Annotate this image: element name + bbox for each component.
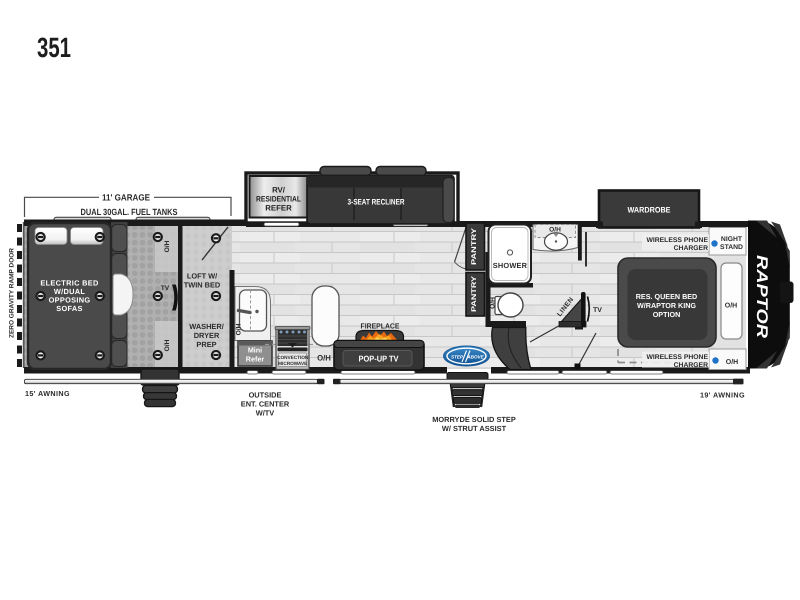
- svg-text:RES. QUEEN BED: RES. QUEEN BED: [636, 292, 698, 301]
- svg-text:TV: TV: [593, 307, 602, 314]
- svg-text:PREP: PREP: [196, 340, 216, 349]
- svg-text:REFER: REFER: [265, 204, 292, 213]
- svg-text:O/H: O/H: [726, 358, 738, 366]
- svg-text:3-SEAT RECLINER: 3-SEAT RECLINER: [348, 198, 405, 207]
- svg-text:O/H: O/H: [490, 297, 497, 309]
- svg-text:OUTSIDE: OUTSIDE: [249, 391, 282, 400]
- svg-text:19' AWNING: 19' AWNING: [700, 390, 745, 399]
- svg-text:15' AWNING: 15' AWNING: [25, 389, 70, 398]
- svg-text:SOFAS: SOFAS: [56, 304, 83, 313]
- svg-text:351: 351: [37, 32, 71, 63]
- svg-text:O/H: O/H: [164, 240, 171, 252]
- svg-text:W/ STRUT ASSIST: W/ STRUT ASSIST: [442, 424, 507, 433]
- svg-text:CHARGER: CHARGER: [674, 245, 708, 252]
- svg-text:FIREPLACE: FIREPLACE: [361, 321, 400, 330]
- svg-text:O/H: O/H: [317, 354, 331, 363]
- svg-text:CONVECTION: CONVECTION: [277, 355, 309, 360]
- svg-text:CHARGER: CHARGER: [674, 362, 708, 369]
- svg-text:Mini: Mini: [248, 346, 262, 355]
- svg-text:W/RAPTOR KING: W/RAPTOR KING: [637, 301, 696, 310]
- svg-text:SHOWER: SHOWER: [493, 261, 528, 270]
- svg-text:11' GARAGE: 11' GARAGE: [102, 193, 150, 203]
- svg-text:DRYER: DRYER: [194, 331, 220, 340]
- svg-text:POP-UP TV: POP-UP TV: [359, 354, 399, 364]
- svg-text:PANTRY: PANTRY: [471, 227, 478, 265]
- svg-text:Refer: Refer: [246, 355, 265, 364]
- svg-text:RV/: RV/: [272, 186, 286, 195]
- svg-text:LOFT W/: LOFT W/: [187, 272, 217, 281]
- svg-text:STEP: STEP: [451, 354, 464, 359]
- svg-text:WARDROBE: WARDROBE: [628, 206, 672, 215]
- svg-text:O/H: O/H: [725, 302, 737, 310]
- svg-text:PANTRY: PANTRY: [471, 275, 478, 312]
- svg-text:RAPTOR: RAPTOR: [753, 255, 770, 339]
- svg-text:WASHER/: WASHER/: [189, 322, 224, 331]
- svg-text:TV: TV: [161, 285, 170, 292]
- svg-text:W/TV: W/TV: [256, 409, 275, 418]
- svg-text:TWIN BED: TWIN BED: [184, 281, 221, 290]
- svg-text:MORRYDE SOLID STEP: MORRYDE SOLID STEP: [432, 415, 516, 424]
- svg-text:WIRELESS PHONE: WIRELESS PHONE: [646, 354, 708, 361]
- svg-text:OPTION: OPTION: [653, 310, 681, 319]
- svg-text:STAND: STAND: [720, 244, 743, 251]
- svg-text:O/H: O/H: [164, 339, 171, 351]
- svg-text:ZERO GRAVITY RAMP DOOR: ZERO GRAVITY RAMP DOOR: [9, 248, 16, 338]
- svg-text:ENT. CENTER: ENT. CENTER: [241, 400, 290, 409]
- svg-text:MICROWAVE: MICROWAVE: [278, 361, 307, 366]
- svg-text:RESIDENTIAL: RESIDENTIAL: [256, 195, 301, 204]
- svg-text:ABOVE: ABOVE: [466, 354, 484, 359]
- svg-text:O/H: O/H: [236, 323, 243, 335]
- svg-text:DUAL 30GAL. FUEL TANKS: DUAL 30GAL. FUEL TANKS: [81, 207, 178, 217]
- svg-text:NIGHT: NIGHT: [721, 236, 743, 243]
- svg-text:WIRELESS PHONE: WIRELESS PHONE: [646, 237, 708, 244]
